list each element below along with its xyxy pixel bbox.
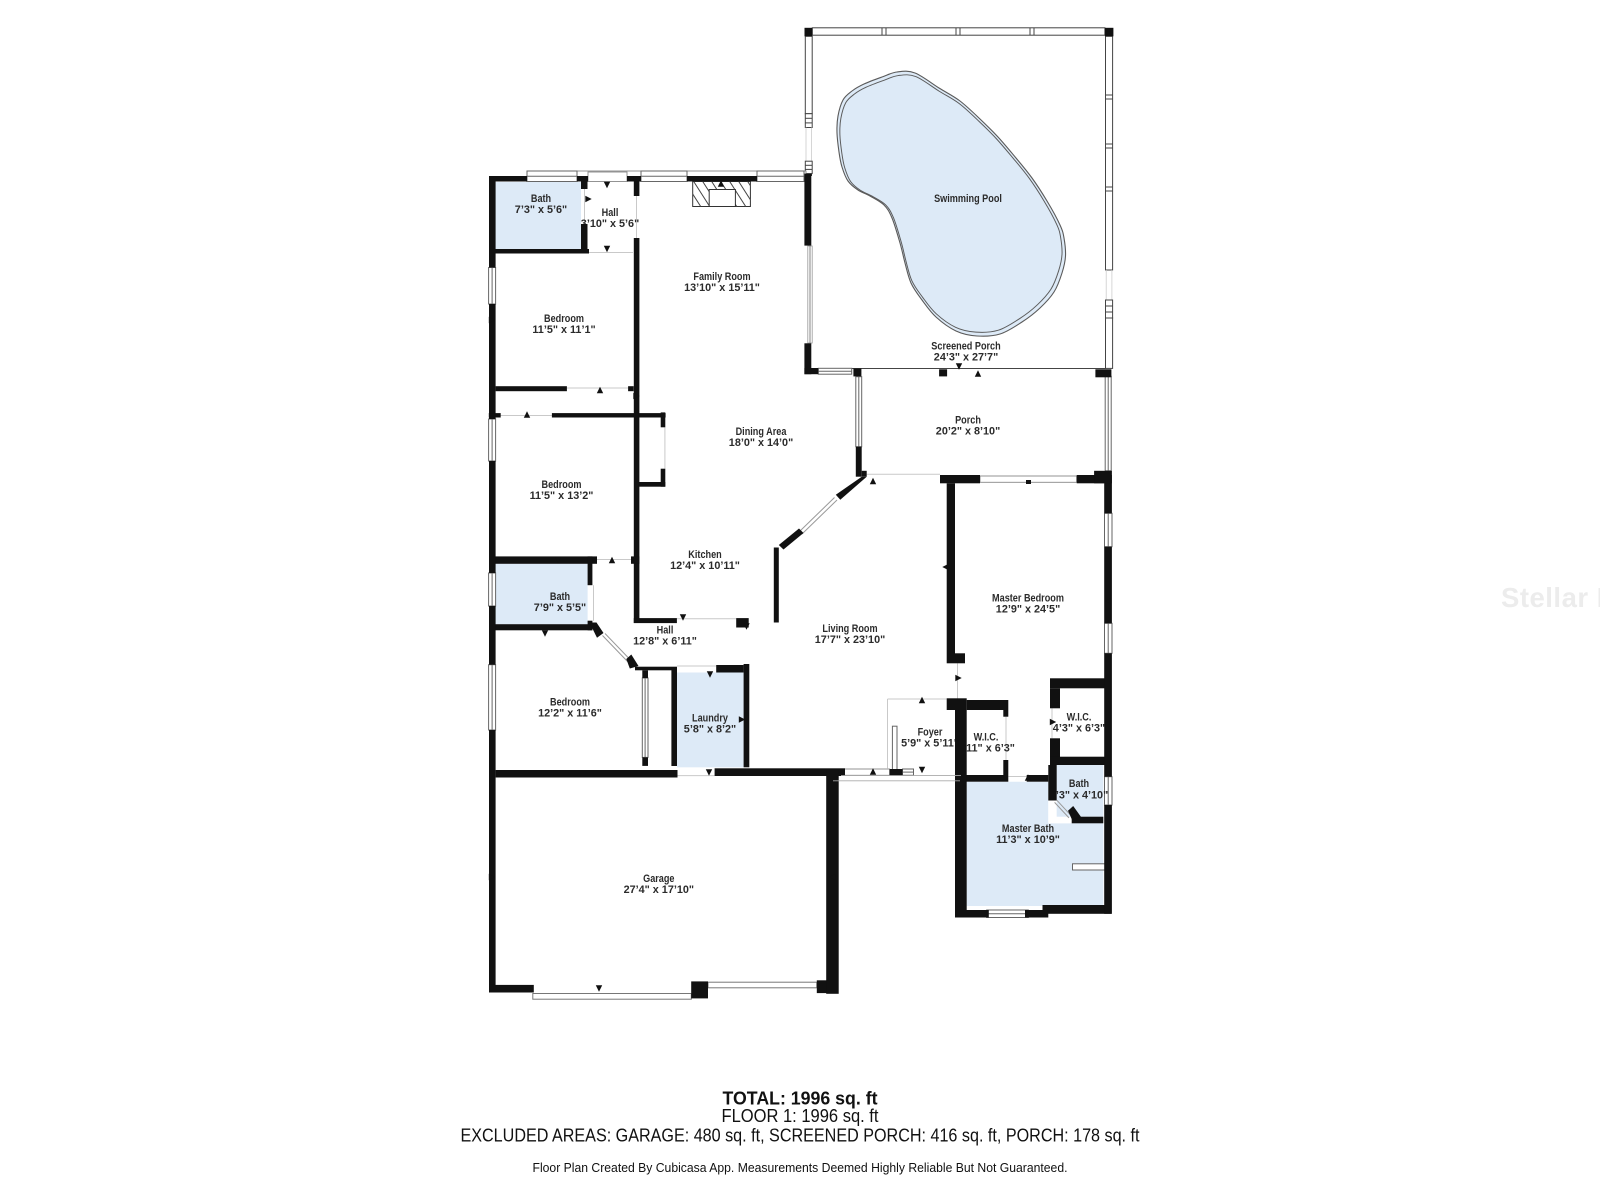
svg-text:20’2" x 8’10": 20’2" x 8’10" (936, 425, 1000, 437)
svg-text:12’9" x 24’5": 12’9" x 24’5" (996, 603, 1060, 615)
svg-text:17’7" x 23’10": 17’7" x 23’10" (815, 634, 885, 646)
svg-text:27’4" x 17’10": 27’4" x 17’10" (624, 884, 694, 896)
svg-text:7’9" x 5’5": 7’9" x 5’5" (534, 602, 586, 614)
svg-text:12’2" x 11’6": 12’2" x 11’6" (538, 707, 602, 719)
svg-text:5’9" x 5’11": 5’9" x 5’11" (901, 737, 959, 749)
svg-text:13’10" x 15’11": 13’10" x 15’11" (684, 282, 760, 294)
svg-text:4’3" x 4’10": 4’3" x 4’10" (1050, 789, 1108, 801)
svg-text:12’8" x 6’11": 12’8" x 6’11" (633, 635, 697, 647)
svg-text:Floor Plan Created By Cubicasa: Floor Plan Created By Cubicasa App. Meas… (533, 1160, 1068, 1175)
svg-text:Swimming Pool: Swimming Pool (934, 193, 1002, 205)
svg-text:5’8" x 8’2": 5’8" x 8’2" (684, 723, 736, 735)
svg-text:3’10" x 5’6": 3’10" x 5’6" (581, 218, 639, 230)
svg-text:4’3" x 6’3": 4’3" x 6’3" (1053, 722, 1105, 734)
svg-text:24’3" x 27’7": 24’3" x 27’7" (934, 351, 998, 363)
svg-text:7’3" x 5’6": 7’3" x 5’6" (515, 204, 567, 216)
svg-text:11’5" x 11’1": 11’5" x 11’1" (532, 324, 595, 336)
svg-text:18’0" x 14’0": 18’0" x 14’0" (729, 437, 793, 449)
svg-text:12’4" x 10’11": 12’4" x 10’11" (670, 560, 740, 572)
svg-text:FLOOR 1: 1996 sq. ft: FLOOR 1: 1996 sq. ft (722, 1105, 879, 1126)
svg-text:11’5" x 13’2": 11’5" x 13’2" (530, 490, 594, 502)
svg-text:EXCLUDED AREAS: GARAGE: 480 sq: EXCLUDED AREAS: GARAGE: 480 sq. ft, SCRE… (461, 1125, 1140, 1146)
svg-text:Stellar MLS: Stellar MLS (1501, 582, 1600, 613)
svg-text:11’3" x 10’9": 11’3" x 10’9" (996, 834, 1060, 846)
